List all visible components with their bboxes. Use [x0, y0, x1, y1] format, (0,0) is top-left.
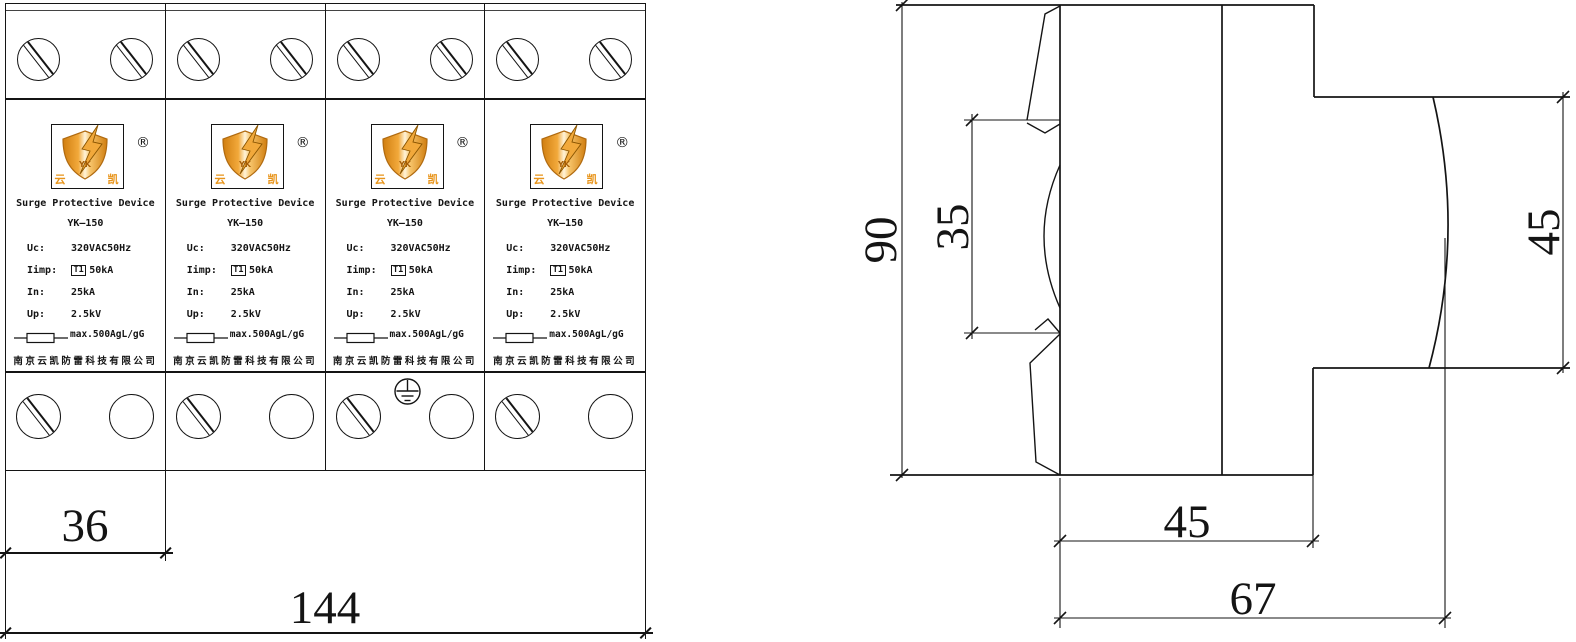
- logo-left-char: 云: [374, 173, 385, 186]
- logo-right-char: 凯: [427, 172, 438, 186]
- spec-value: 2.5kV: [391, 309, 421, 320]
- max-fuse-rating: max.500AgL/gG: [549, 329, 623, 340]
- top-screw-terminal: [589, 38, 632, 81]
- type1-badge: T1: [71, 265, 86, 277]
- screw-slot-icon: [495, 394, 540, 439]
- bottom-screw-terminal: [16, 394, 61, 439]
- top-screw-terminal: [496, 38, 539, 81]
- extension-line-module1: [165, 471, 166, 561]
- terminal-section-divider: [6, 98, 165, 100]
- spec-uc: Uc: 320VAC50Hz: [347, 242, 481, 255]
- bottom-screw-terminal: [495, 394, 540, 439]
- model-number: YK—150: [326, 218, 485, 229]
- spec-iimp: Iimp: T1 50kA: [347, 264, 481, 277]
- spec-value: 320VAC50Hz: [391, 243, 451, 254]
- top-screw-terminal: [270, 38, 313, 81]
- spec-value: 2.5kV: [231, 309, 261, 320]
- brand-logo: YK 云 凯: [371, 124, 444, 189]
- spec-label: In:: [506, 287, 550, 298]
- type1-badge: T1: [231, 265, 246, 277]
- spec-label: Iimp:: [347, 265, 391, 276]
- spec-label: Iimp:: [187, 265, 231, 276]
- extension-line-right: [645, 471, 646, 639]
- spec-label: In:: [27, 287, 71, 298]
- spec-value: 320VAC50Hz: [231, 243, 291, 254]
- bottom-screw-terminal: [176, 394, 221, 439]
- dim-line-36: [0, 552, 173, 553]
- spec-label: Up:: [27, 309, 71, 320]
- manufacturer-name: 南京云凯防雷科技有限公司: [328, 353, 483, 367]
- enclosure-top-edge: [6, 10, 165, 11]
- top-screw-terminal: [110, 38, 153, 81]
- label-section-divider: [166, 371, 325, 373]
- screw-slot-icon: [16, 394, 61, 439]
- model-number: YK—150: [485, 218, 645, 229]
- screw-slot-icon: [177, 38, 220, 81]
- product-name: Surge Protective Device: [166, 198, 325, 209]
- spec-uc: Uc: 320VAC50Hz: [506, 242, 640, 255]
- spec-in: In: 25kA: [506, 286, 640, 299]
- device-profile-outline: [890, 5, 1570, 475]
- spec-up: Up: 2.5kV: [27, 308, 161, 321]
- spd-module: YK 云 凯 ® Surge Protective Device YK—150 …: [6, 4, 166, 470]
- spec-label: Up:: [187, 309, 231, 320]
- dimension-lines: [896, 0, 1569, 628]
- label-section-divider: [6, 371, 165, 373]
- top-screw-terminal: [337, 38, 380, 81]
- logo-right-char: 凯: [108, 172, 119, 186]
- spec-in: In: 25kA: [27, 286, 161, 299]
- product-name: Surge Protective Device: [485, 198, 645, 209]
- spec-value: 25kA: [550, 287, 574, 298]
- dim-overall-height: 90: [860, 217, 907, 264]
- manufacturer-name: 南京云凯防雷科技有限公司: [8, 353, 163, 367]
- logo-center-text: YK: [78, 160, 92, 169]
- logo-left-char: 云: [214, 173, 225, 186]
- screw-slot-icon: [336, 394, 381, 439]
- registered-trademark-icon: ®: [296, 135, 310, 151]
- bottom-screw-terminal: [336, 394, 381, 439]
- terminal-section-divider: [166, 98, 325, 100]
- manufacturer-name: 南京云凯防雷科技有限公司: [168, 353, 323, 367]
- spd-module: YK 云 凯 ® Surge Protective Device YK—150 …: [326, 4, 486, 470]
- model-number: YK—150: [166, 218, 325, 229]
- spec-label: In:: [187, 287, 231, 298]
- spec-value: 320VAC50Hz: [71, 243, 131, 254]
- spd-module: YK 云 凯 ® Surge Protective Device YK—150 …: [166, 4, 326, 470]
- spec-value: 2.5kV: [550, 309, 580, 320]
- terminal-section-divider: [485, 98, 645, 100]
- spec-up: Up: 2.5kV: [347, 308, 481, 321]
- spec-label: Iimp:: [27, 265, 71, 276]
- spec-label: Uc:: [506, 243, 550, 254]
- bottom-wire-terminal: [588, 394, 633, 439]
- spec-value: 320VAC50Hz: [550, 243, 610, 254]
- max-fuse-rating: max.500AgL/gG: [230, 329, 304, 340]
- label-section-divider: [326, 371, 485, 373]
- model-number: YK—150: [6, 218, 165, 229]
- spec-value: 50kA: [569, 265, 593, 276]
- dim-base-width: 45: [1164, 496, 1211, 548]
- brand-logo: YK 云 凯: [51, 124, 124, 189]
- spec-value: 25kA: [231, 287, 255, 298]
- terminal-section-divider: [326, 98, 485, 100]
- screw-slot-icon: [430, 38, 473, 81]
- dim-front-block-height: 45: [1518, 209, 1570, 256]
- top-screw-terminal: [177, 38, 220, 81]
- front-view-drawing: YK 云 凯 ® Surge Protective Device YK—150 …: [5, 3, 646, 471]
- dim-total-width: 144: [245, 586, 405, 631]
- fuse-icon: [14, 329, 68, 348]
- bottom-wire-terminal: [109, 394, 154, 439]
- product-name: Surge Protective Device: [326, 198, 485, 209]
- enclosure-top-edge: [326, 10, 485, 11]
- top-screw-terminal: [430, 38, 473, 81]
- logo-right-char: 凯: [587, 172, 598, 186]
- spec-value: 50kA: [249, 265, 273, 276]
- spec-up: Up: 2.5kV: [506, 308, 640, 321]
- technical-drawing: YK 云 凯 ® Surge Protective Device YK—150 …: [0, 0, 1576, 642]
- screw-slot-icon: [589, 38, 632, 81]
- shield-icon: [383, 131, 427, 179]
- fuse-icon: [493, 329, 547, 348]
- spec-value: 50kA: [409, 265, 433, 276]
- spec-label: Uc:: [27, 243, 71, 254]
- dim-ticks: [896, 0, 1569, 624]
- fuse-icon: [334, 329, 388, 348]
- registered-trademark-icon: ®: [136, 135, 150, 151]
- spec-uc: Uc: 320VAC50Hz: [27, 242, 161, 255]
- logo-center-text: YK: [398, 160, 412, 169]
- max-fuse-rating: max.500AgL/gG: [390, 329, 464, 340]
- spec-iimp: Iimp: T1 50kA: [506, 264, 640, 277]
- spec-value: 25kA: [391, 287, 415, 298]
- spec-label: Up:: [506, 309, 550, 320]
- spec-value: 2.5kV: [71, 309, 101, 320]
- product-name: Surge Protective Device: [6, 198, 165, 209]
- dim-overall-depth: 67: [1230, 573, 1277, 625]
- side-view-drawing: 90 35 45 45 67: [860, 0, 1576, 642]
- logo-center-text: YK: [557, 160, 571, 169]
- screw-slot-icon: [110, 38, 153, 81]
- enclosure-top-edge: [485, 10, 645, 11]
- logo-left-char: 云: [55, 173, 66, 186]
- spec-uc: Uc: 320VAC50Hz: [187, 242, 321, 255]
- din-rail-clip: [1027, 6, 1060, 475]
- max-fuse-rating: max.500AgL/gG: [70, 329, 144, 340]
- earth-ground-icon: [394, 378, 421, 405]
- logo-center-text: YK: [238, 160, 252, 169]
- screw-slot-icon: [337, 38, 380, 81]
- spec-label: Uc:: [187, 243, 231, 254]
- dim-rail-slot-height: 35: [927, 204, 979, 251]
- spec-up: Up: 2.5kV: [187, 308, 321, 321]
- bottom-wire-terminal: [429, 394, 474, 439]
- brand-logo: YK 云 凯: [211, 124, 284, 189]
- spec-in: In: 25kA: [187, 286, 321, 299]
- shield-icon: [542, 131, 586, 179]
- top-screw-terminal: [17, 38, 60, 81]
- manufacturer-name: 南京云凯防雷科技有限公司: [487, 353, 643, 367]
- extension-line-left: [5, 471, 6, 639]
- spec-iimp: Iimp: T1 50kA: [27, 264, 161, 277]
- shield-icon: [63, 131, 107, 179]
- screw-slot-icon: [270, 38, 313, 81]
- label-section-divider: [485, 371, 645, 373]
- shield-icon: [223, 131, 267, 179]
- spec-iimp: Iimp: T1 50kA: [187, 264, 321, 277]
- bottom-wire-terminal: [269, 394, 314, 439]
- spec-label: Uc:: [347, 243, 391, 254]
- spec-in: In: 25kA: [347, 286, 481, 299]
- registered-trademark-icon: ®: [615, 135, 629, 151]
- spd-module: YK 云 凯 ® Surge Protective Device YK—150 …: [485, 4, 645, 470]
- type1-badge: T1: [391, 265, 406, 277]
- brand-logo: YK 云 凯: [530, 124, 603, 189]
- spec-value: 50kA: [89, 265, 113, 276]
- logo-right-char: 凯: [267, 172, 278, 186]
- spec-label: Up:: [347, 309, 391, 320]
- screw-slot-icon: [496, 38, 539, 81]
- screw-slot-icon: [17, 38, 60, 81]
- enclosure-top-edge: [166, 10, 325, 11]
- spec-label: In:: [347, 287, 391, 298]
- spec-value: 25kA: [71, 287, 95, 298]
- registered-trademark-icon: ®: [456, 135, 470, 151]
- dim-module-width: 36: [35, 504, 135, 549]
- fuse-icon: [174, 329, 228, 348]
- logo-left-char: 云: [534, 173, 545, 186]
- spec-label: Iimp:: [506, 265, 550, 276]
- screw-slot-icon: [176, 394, 221, 439]
- type1-badge: T1: [550, 265, 565, 277]
